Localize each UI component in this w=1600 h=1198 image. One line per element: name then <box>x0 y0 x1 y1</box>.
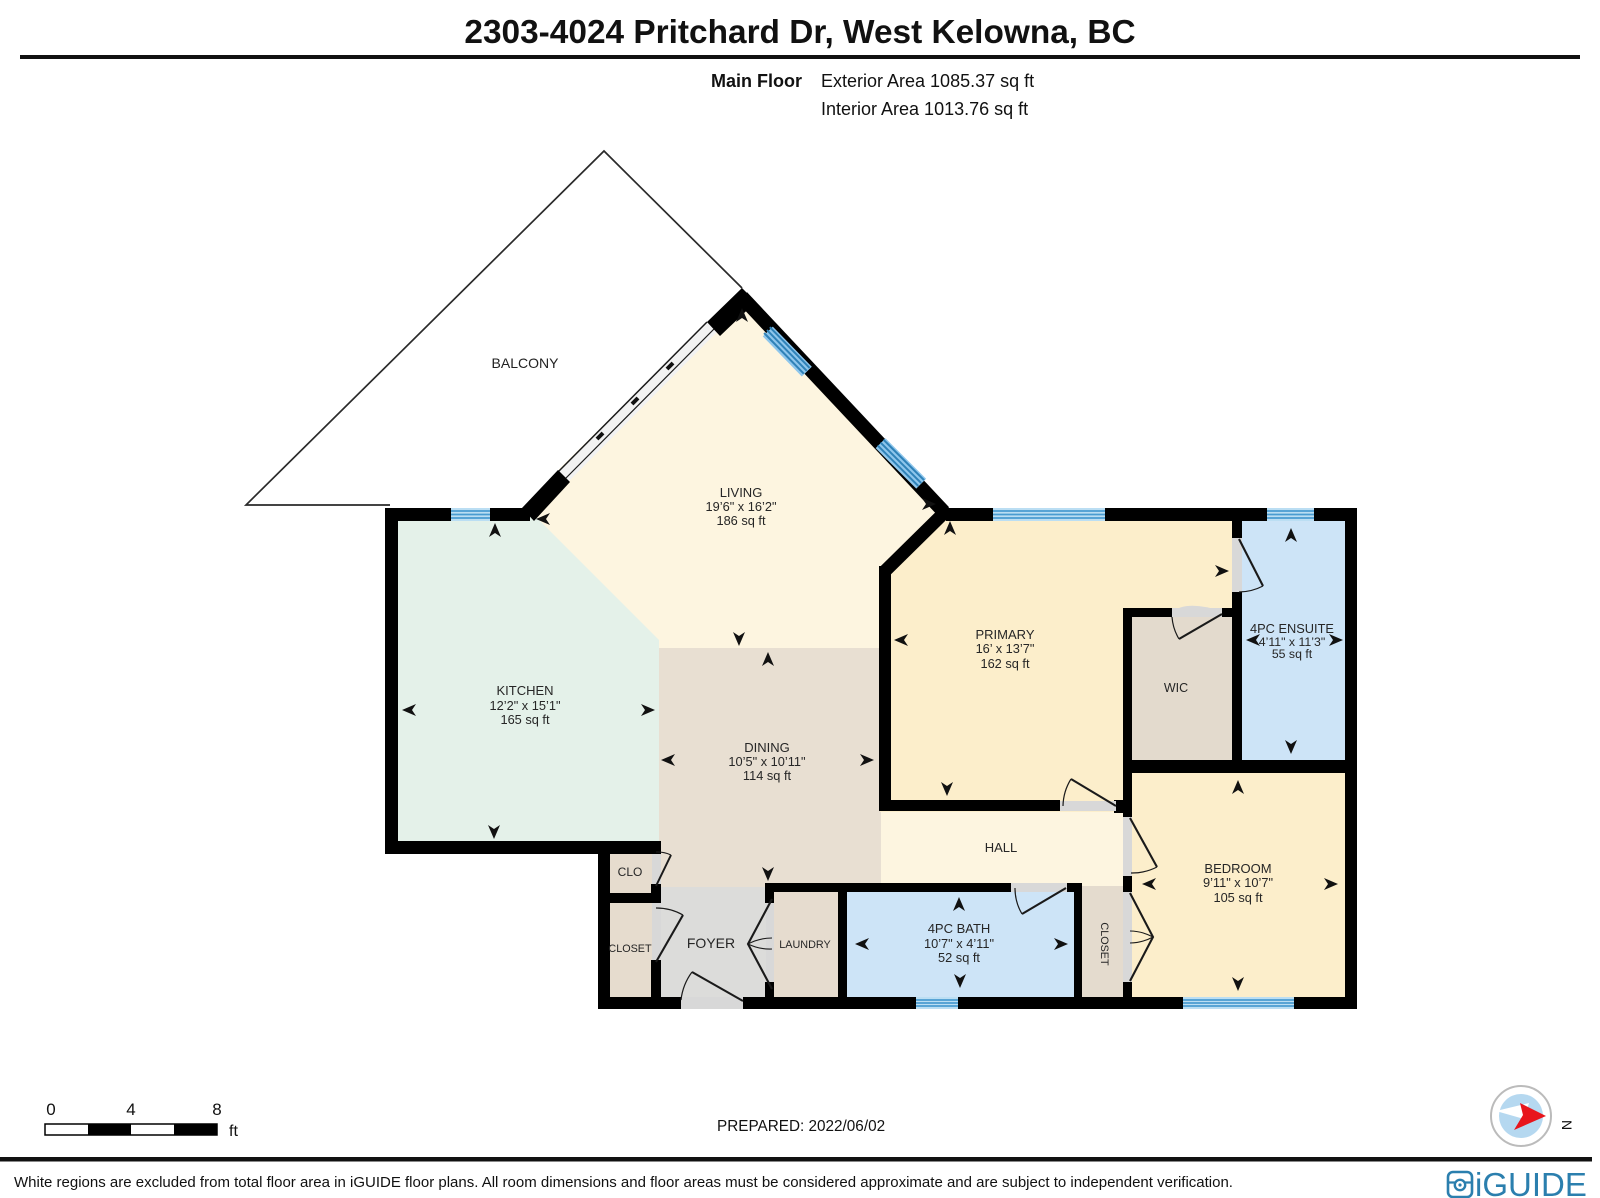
svg-text:4PC BATH: 4PC BATH <box>928 921 991 936</box>
svg-text:10’7" x 4’11": 10’7" x 4’11" <box>924 936 994 951</box>
svg-text:105 sq ft: 105 sq ft <box>1213 890 1263 905</box>
svg-text:KITCHEN: KITCHEN <box>496 683 553 698</box>
svg-text:LIVING: LIVING <box>720 485 763 500</box>
svg-text:10’5" x 10’11": 10’5" x 10’11" <box>728 754 805 769</box>
svg-text:19’6" x 16’2": 19’6" x 16’2" <box>706 499 777 514</box>
svg-text:HALL: HALL <box>985 840 1018 855</box>
svg-text:BALCONY: BALCONY <box>492 355 560 371</box>
svg-text:4: 4 <box>126 1100 135 1119</box>
svg-text:PREPARED: 2022/06/02: PREPARED: 2022/06/02 <box>717 1118 885 1135</box>
svg-text:CLO: CLO <box>618 865 643 879</box>
svg-text:CLOSET: CLOSET <box>608 943 652 955</box>
svg-text:Interior Area 1013.76 sq ft: Interior Area 1013.76 sq ft <box>821 99 1028 119</box>
svg-text:CLOSET: CLOSET <box>1098 922 1110 966</box>
svg-text:165 sq ft: 165 sq ft <box>500 712 550 727</box>
svg-text:Exterior Area 1085.37 sq ft: Exterior Area 1085.37 sq ft <box>821 71 1034 91</box>
svg-text:16’ x 13’7": 16’ x 13’7" <box>976 641 1035 656</box>
svg-text:DINING: DINING <box>744 740 790 755</box>
svg-text:12’2" x 15’1": 12’2" x 15’1" <box>490 698 561 713</box>
svg-text:ft: ft <box>229 1123 238 1140</box>
svg-text:162 sq ft: 162 sq ft <box>980 656 1030 671</box>
svg-text:LAUNDRY: LAUNDRY <box>779 939 830 951</box>
svg-text:4PC ENSUITE: 4PC ENSUITE <box>1250 621 1334 636</box>
svg-text:9’11" x 10’7": 9’11" x 10’7" <box>1203 875 1273 890</box>
svg-text:iGUIDE: iGUIDE <box>1475 1166 1587 1198</box>
svg-text:FOYER: FOYER <box>687 935 735 951</box>
svg-text:2303-4024 Pritchard Dr, West K: 2303-4024 Pritchard Dr, West Kelowna, BC <box>464 14 1135 51</box>
svg-text:186 sq ft: 186 sq ft <box>716 513 766 528</box>
svg-text:Main Floor: Main Floor <box>711 71 802 91</box>
svg-text:WIC: WIC <box>1164 681 1188 695</box>
svg-text:55 sq ft: 55 sq ft <box>1272 647 1313 661</box>
svg-text:N: N <box>1559 1120 1575 1130</box>
svg-text:BEDROOM: BEDROOM <box>1204 861 1271 876</box>
svg-text:52 sq ft: 52 sq ft <box>938 950 980 965</box>
svg-text:0: 0 <box>46 1100 55 1119</box>
svg-text:8: 8 <box>212 1100 221 1119</box>
svg-text:White regions are excluded fro: White regions are excluded from total fl… <box>14 1174 1233 1191</box>
svg-text:PRIMARY: PRIMARY <box>976 627 1035 642</box>
svg-text:114 sq ft: 114 sq ft <box>743 768 792 783</box>
